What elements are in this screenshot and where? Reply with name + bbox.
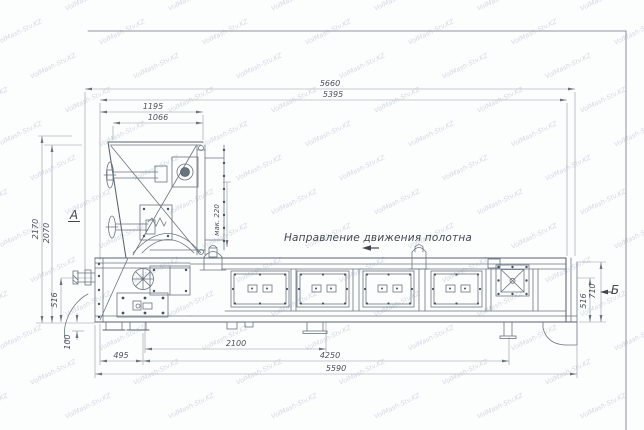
dim-2100: 2100 [226, 339, 246, 348]
dim-1066: 1066 [148, 113, 168, 122]
conveyor-panel [431, 271, 482, 307]
dim-5395: 5395 [323, 90, 343, 99]
direction-arrow-icon [362, 245, 371, 250]
dim-5590: 5590 [326, 364, 346, 373]
annotation-labels: Направление движения полотна А Б [68, 208, 619, 297]
sheet-frame [88, 31, 626, 430]
dim-516-right: 516 [579, 293, 588, 308]
conveyor-panel [363, 271, 414, 307]
dim-4250: 4250 [320, 351, 340, 360]
conveyor-legs [227, 322, 516, 339]
vent-tower [409, 245, 429, 269]
dim-495: 495 [113, 351, 128, 360]
direction-label: Направление движения полотна [284, 232, 472, 244]
dim-2070: 2070 [42, 223, 51, 243]
dim-5660: 5660 [320, 79, 340, 88]
dim-max-220: мак. 220 [213, 204, 221, 236]
dim-710: 710 [588, 283, 597, 298]
conveyor-panel [231, 271, 289, 307]
technical-drawing: 5660 5395 1195 1066 2170 2070 516 100 ма… [0, 0, 644, 430]
dim-516-left: 516 [50, 292, 59, 307]
conveyor-panel [297, 271, 349, 307]
dim-2170: 2170 [31, 219, 40, 239]
view-b-label: Б [611, 283, 619, 297]
drawing-sheet: VolMash-Stv.KZVolMash-Stv.KZVolMash-Stv.… [0, 0, 644, 430]
fan-grill [496, 265, 529, 296]
dim-1195: 1195 [143, 102, 163, 111]
view-a-label: А [69, 208, 78, 222]
